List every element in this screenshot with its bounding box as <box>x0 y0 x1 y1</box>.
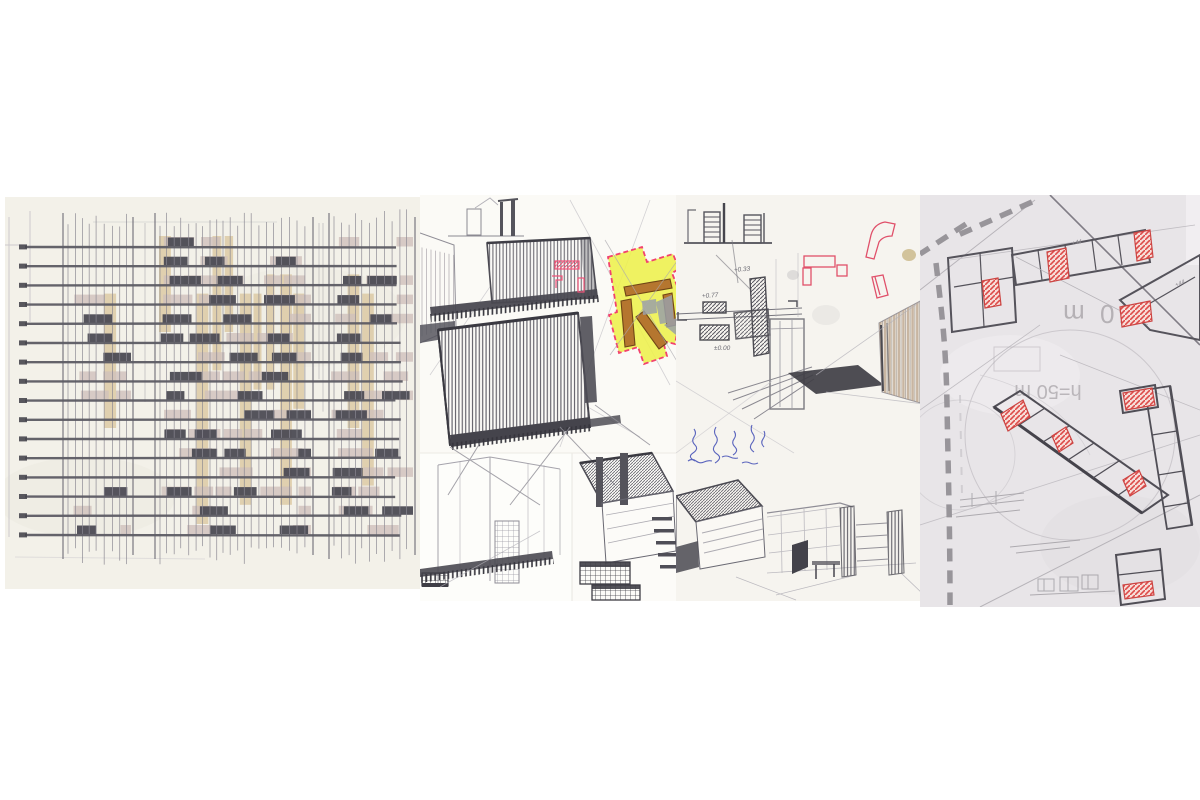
paper-texture <box>1040 495 1200 595</box>
level-annotation-left: +0.77 <box>702 292 719 300</box>
screenshot-stage: +0.33 +0.77 ±0.00 <box>0 0 1200 800</box>
hatched-column <box>840 506 856 577</box>
paper-smudge <box>787 270 799 280</box>
panel-plan-and-corridor: +0.33 +0.77 ±0.00 <box>676 195 925 601</box>
tan-smudge <box>902 249 916 261</box>
level-annotation-upper: +0.33 <box>734 266 751 274</box>
perspective-sketch-drawing <box>420 195 676 601</box>
paper-smudge <box>812 305 840 325</box>
paper-edge-light <box>1186 195 1200 265</box>
level-annotation-datum: ±0.00 <box>714 345 731 352</box>
plan-corridor-drawing: +0.33 +0.77 ±0.00 <box>676 195 925 601</box>
panel-site-plan: 50 m h=50 m <box>920 195 1200 607</box>
panel-perspective-sketches <box>420 195 676 601</box>
mirrored-height-label: h=50 m <box>1014 380 1081 402</box>
sketch-collage-strip: +0.33 +0.77 ±0.00 <box>5 195 1200 607</box>
hatched-column <box>887 510 904 575</box>
curtain-wall-grid <box>495 521 519 583</box>
panel-facade-study <box>5 197 420 589</box>
facade-study-drawing <box>5 197 420 589</box>
site-plan-drawing: 50 m h=50 m <box>920 195 1200 607</box>
